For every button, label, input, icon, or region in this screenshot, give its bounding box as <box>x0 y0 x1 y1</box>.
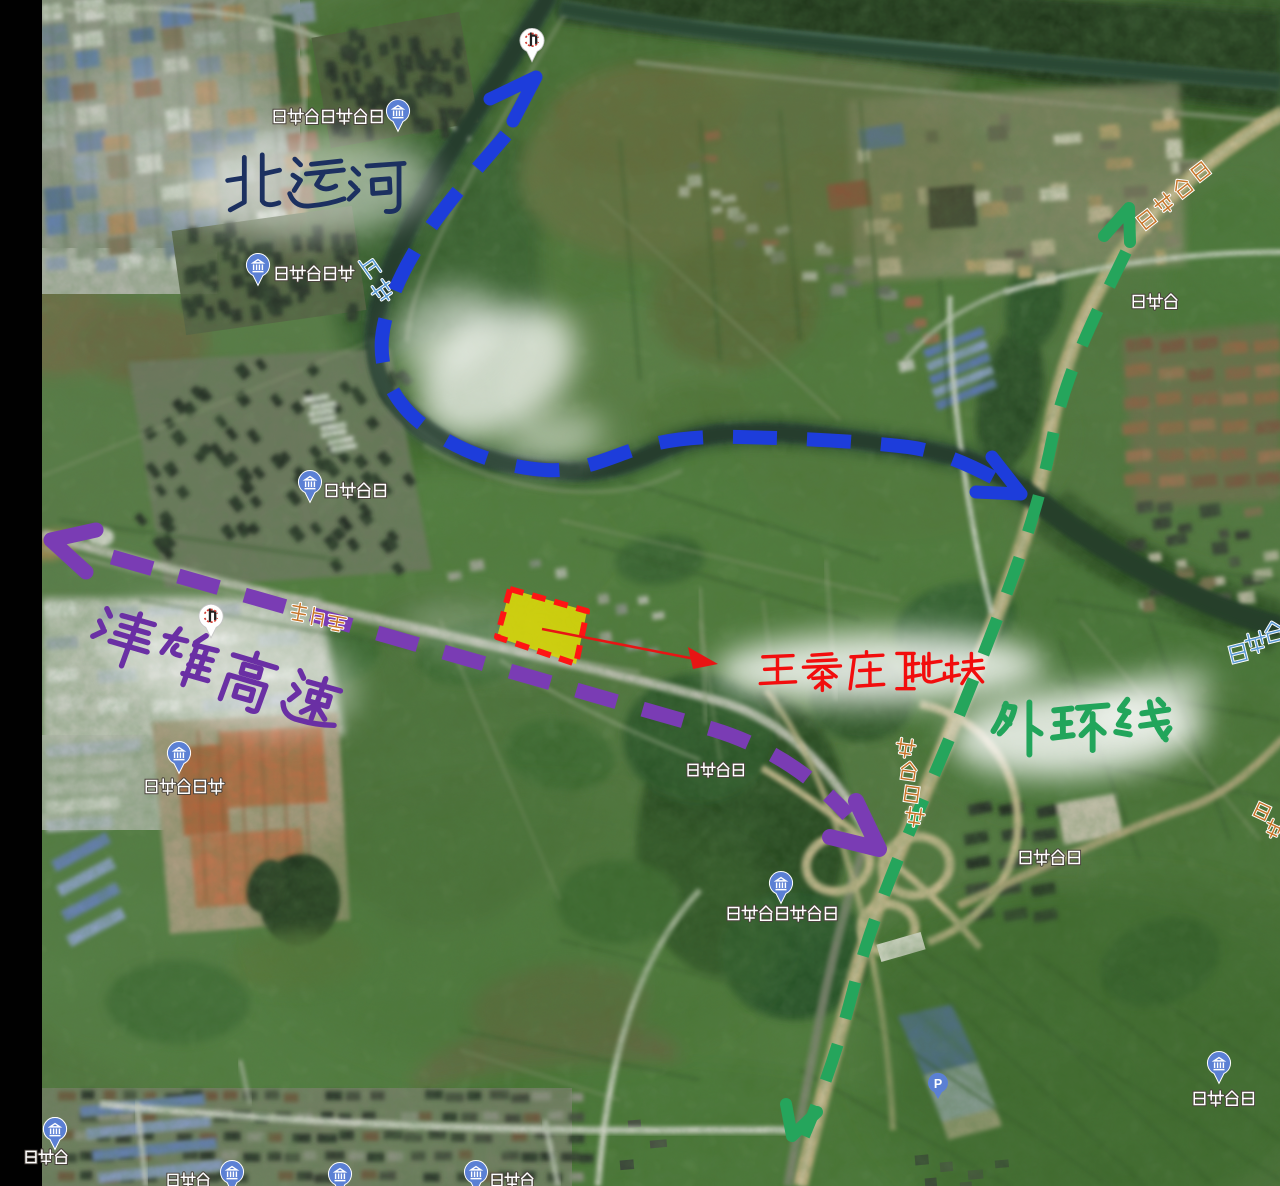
svg-text:P: P <box>934 1077 942 1091</box>
